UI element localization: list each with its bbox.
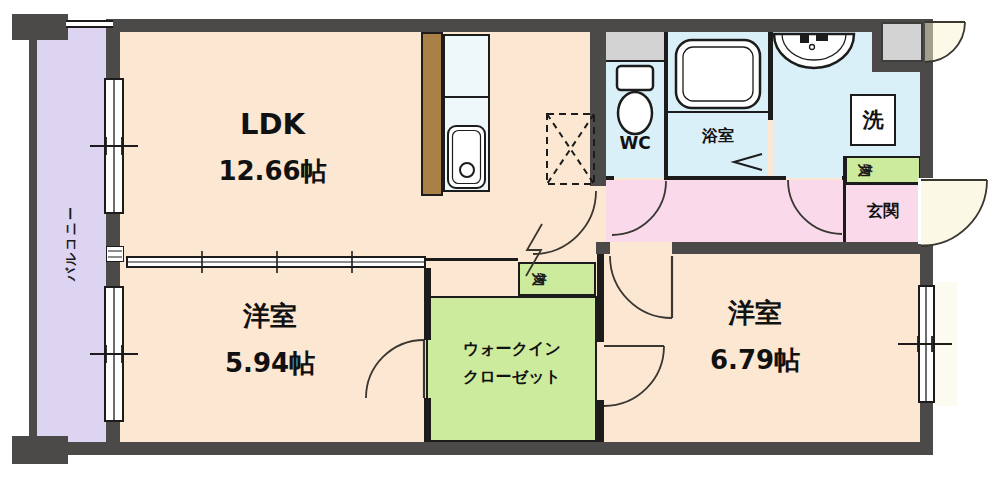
bathroom-label: 浴室 bbox=[666, 127, 770, 145]
wall-vestibule-line bbox=[426, 258, 518, 261]
wc-label: WC bbox=[604, 134, 666, 154]
balcony-label: バルコニー bbox=[62, 204, 80, 280]
ldk-labels: LDK 12.66帖 bbox=[175, 108, 370, 187]
entrance-label: 玄関 bbox=[846, 202, 920, 220]
floor-plan: 洗 bbox=[0, 0, 1000, 478]
balcony-railing bbox=[29, 14, 37, 464]
hallway bbox=[606, 180, 843, 242]
wic-name-line1: ウォークイン bbox=[430, 340, 594, 358]
ldk-name: LDK bbox=[175, 108, 370, 141]
wall-stub-top-left bbox=[12, 14, 68, 40]
pipe-space-block bbox=[604, 32, 666, 62]
room-washroom-lower bbox=[773, 158, 845, 178]
wic-labels: ウォークイン クローゼット bbox=[430, 340, 594, 387]
wall-bottom bbox=[36, 442, 933, 455]
wall-wic-bedroom2-upper bbox=[597, 254, 604, 342]
entrance-door-opening bbox=[918, 178, 935, 244]
wall-top bbox=[113, 19, 933, 32]
wall-stub-bottom-left bbox=[12, 436, 68, 464]
laundry-label: 洗 bbox=[863, 108, 884, 132]
balcony-railing-top bbox=[66, 20, 113, 28]
window-glow bbox=[935, 282, 957, 406]
wall-wc-bath bbox=[664, 32, 668, 178]
bedroom2-area: 6.79帖 bbox=[645, 346, 865, 376]
wall-bedroom-wic-lower bbox=[424, 398, 431, 442]
bedroom1-area: 5.94帖 bbox=[155, 349, 385, 379]
wall-wic-bedroom2-lower bbox=[597, 400, 604, 442]
meter-box bbox=[881, 22, 923, 62]
wall-vent bbox=[106, 246, 124, 262]
kitchen-counter-top bbox=[443, 34, 490, 192]
wic-name-line2: クローゼット bbox=[430, 368, 594, 386]
wall-hall-bottom-right bbox=[672, 242, 921, 254]
wall-hall-top-a bbox=[606, 176, 614, 180]
bedroom1-name: 洋室 bbox=[155, 300, 385, 331]
wall-bedroom-wic-upper bbox=[424, 268, 431, 340]
hall-storage-label-box: 物入 bbox=[845, 156, 921, 184]
ldk-area: 12.66帖 bbox=[175, 157, 370, 187]
wall-bath-washroom bbox=[768, 32, 773, 120]
kitchen-counter-divider bbox=[443, 96, 490, 98]
kitchen-counter-base bbox=[421, 32, 443, 196]
window-balcony-ldk bbox=[104, 78, 124, 214]
bedroom1-labels: 洋室 5.94帖 bbox=[155, 300, 385, 379]
balcony-label-box: バルコニー bbox=[41, 180, 101, 305]
room-bathroom bbox=[668, 32, 768, 178]
laundry-box: 洗 bbox=[850, 94, 896, 146]
bedroom2-name: 洋室 bbox=[645, 297, 865, 328]
window-bedroom2 bbox=[918, 285, 935, 403]
wall-hall-bottom-left bbox=[596, 242, 610, 254]
bedroom2-labels: 洋室 6.79帖 bbox=[645, 297, 865, 376]
wall-ldk-wc bbox=[590, 32, 606, 186]
sliding-partition bbox=[126, 256, 426, 268]
closet-storage-label-box: 物入 bbox=[518, 262, 596, 296]
window-balcony-bedroom bbox=[104, 286, 124, 422]
wall-hall-top-b bbox=[664, 176, 786, 180]
